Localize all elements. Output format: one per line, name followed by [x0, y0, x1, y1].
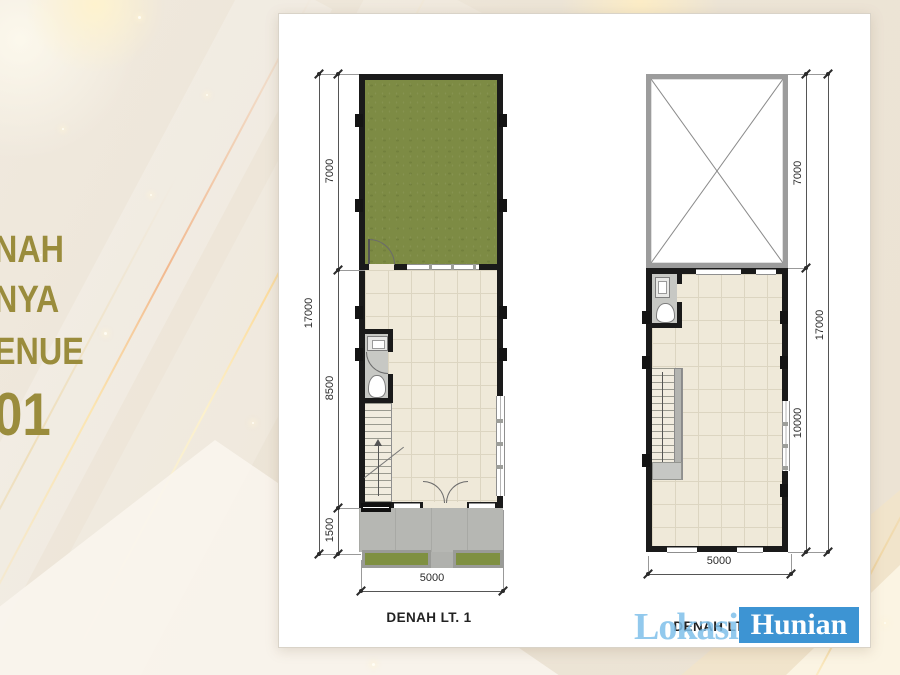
bg-text-line: NAH [0, 231, 64, 271]
dimension-dot [317, 552, 321, 556]
dimension-line [319, 74, 320, 554]
plan1-walkway [431, 552, 453, 568]
plan2-front-window [737, 547, 763, 553]
plan2-rear-window [696, 269, 741, 275]
window-mullion [429, 264, 432, 270]
column [499, 306, 507, 319]
plan2-stairs [652, 368, 674, 476]
sparkle [372, 663, 375, 666]
dimension-connector [503, 510, 504, 591]
column [355, 348, 363, 361]
plan2-side-window [782, 401, 790, 471]
window-mullion [782, 444, 788, 448]
dimension-line [828, 74, 829, 552]
dimension-dot [646, 572, 650, 576]
plan2-bathroom-wall [652, 323, 682, 328]
column [642, 454, 650, 467]
column [499, 348, 507, 361]
dim-label-total-height: 17000 [303, 285, 315, 341]
window-mullion [451, 264, 454, 270]
dimension-line [338, 74, 339, 554]
bg-text-line: NYA [0, 281, 59, 321]
dim-label-main: 10000 [792, 395, 804, 451]
sink-icon [367, 336, 388, 351]
dimension-connector [788, 74, 828, 75]
dim-label-total-height: 17000 [814, 297, 826, 353]
void-cross-icon [651, 79, 783, 263]
dimension-dot [336, 552, 340, 556]
planter-strip [362, 550, 431, 568]
door-leaf [368, 239, 370, 264]
sparkle [150, 194, 152, 196]
dimension-dot [336, 268, 340, 272]
plan2-stairs-rail [674, 368, 682, 476]
dimension-line [361, 591, 503, 592]
dim-label-garden: 7000 [324, 143, 336, 199]
dim-label-width: 5000 [689, 555, 749, 567]
sparkle [884, 622, 886, 624]
dimension-dot [317, 72, 321, 76]
plan1-garden-wall-segment [394, 264, 407, 270]
plan1-stairs-arrowhead [374, 439, 382, 446]
dim-label-porch: 1500 [324, 502, 336, 558]
dimension-dot [804, 550, 808, 554]
column [355, 114, 363, 127]
column [355, 306, 363, 319]
column [499, 114, 507, 127]
dim-label-main: 8500 [324, 360, 336, 416]
dimension-dot [336, 72, 340, 76]
dimension-dot [501, 589, 505, 593]
threshold-line [363, 507, 389, 508]
sparkle [206, 94, 208, 96]
dimension-connector [788, 552, 828, 553]
plan1-garden-lawn [365, 80, 497, 264]
dimension-dot [336, 506, 340, 510]
plan1-garden-wall-segment [479, 264, 503, 270]
sparkle [62, 128, 64, 130]
dimension-dot [359, 589, 363, 593]
watermark-hunian: Hunian [739, 607, 859, 643]
dimension-line [648, 574, 791, 575]
plan2-stairs-arrow [662, 372, 663, 468]
watermark-lokasi: Lokasi [634, 608, 738, 646]
window-mullion [473, 264, 476, 270]
plan1-porch [359, 508, 503, 552]
sparkle [252, 422, 254, 424]
dimension-dot [804, 72, 808, 76]
plan1-stairs-arrow [378, 446, 379, 496]
dim-label-void: 7000 [792, 145, 804, 201]
dimension-dot [826, 72, 830, 76]
plan1-stairs-divider [391, 403, 392, 502]
toilet-icon [368, 375, 386, 398]
window-mullion [782, 466, 788, 470]
sink-icon [655, 277, 670, 298]
sparkle [104, 332, 107, 335]
plan1-threshold-step [361, 503, 391, 512]
plan1-title: DENAH LT. 1 [354, 610, 504, 625]
column [642, 356, 650, 369]
plan1-garden-window [407, 264, 479, 270]
toilet-icon [656, 303, 675, 323]
window-mullion [496, 442, 503, 446]
plan1-bathroom-wall [388, 329, 393, 352]
planter-strip [453, 550, 503, 568]
bg-text-line: 01 [0, 383, 51, 446]
plan2-stairs-landing [652, 462, 682, 480]
dimension-dot [804, 266, 808, 270]
column [780, 311, 788, 324]
column [642, 311, 650, 324]
floorplan-card: 17000 7000 8500 1500 5000 DENAH LT. 1 [278, 13, 871, 648]
sparkle [138, 16, 141, 19]
plan2-front-window [667, 547, 697, 553]
window-mullion [496, 465, 503, 469]
plan2-rear-window [756, 269, 776, 275]
column [499, 199, 507, 212]
dimension-connector [338, 508, 359, 509]
column [780, 356, 788, 369]
dimension-dot [789, 572, 793, 576]
dimension-connector [338, 270, 365, 271]
column [355, 199, 363, 212]
plan2-stairs-divider [682, 368, 683, 480]
sink-basin [372, 340, 385, 349]
dimension-connector [361, 560, 362, 591]
window-mullion [782, 422, 788, 426]
dimension-line [806, 74, 807, 552]
slide-canvas: NAH NYA ENUE 01 [0, 0, 900, 675]
window-mullion [496, 419, 503, 423]
dimension-dot [826, 550, 830, 554]
column [780, 484, 788, 497]
dim-label-width: 5000 [402, 572, 462, 584]
sink-basin [658, 281, 667, 294]
plan1-side-window [496, 396, 505, 496]
plan2-bathroom-wall [677, 274, 682, 284]
bg-text-line: ENUE [0, 333, 84, 373]
